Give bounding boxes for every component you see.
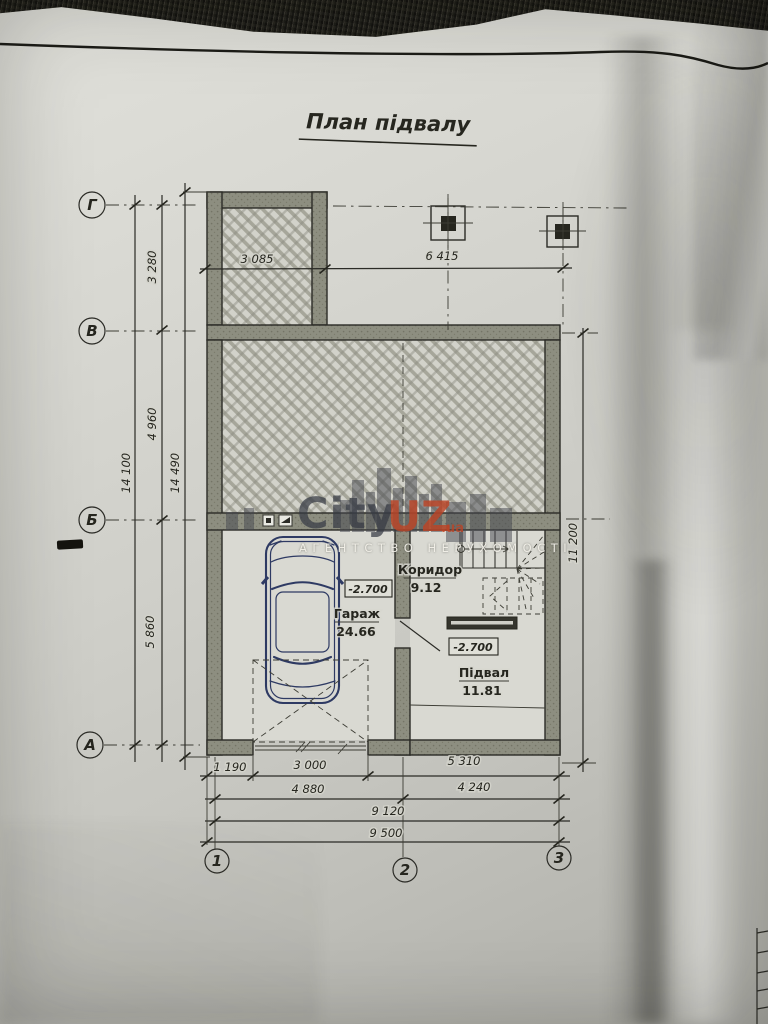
dim-left-seg3: 5 860 — [143, 616, 157, 649]
dim-left-total-walls: 14 490 — [168, 453, 182, 493]
garage-area: 24.66 — [336, 624, 376, 639]
dim-b4-total: 9 500 — [370, 826, 403, 840]
axis-row-b: Б — [86, 511, 97, 529]
basement-elevation: -2.700 — [453, 641, 493, 654]
dim-right-total: 11 200 — [566, 523, 580, 563]
photo-of-blueprint: Г В Б А 1 2 3 14 100 3 280 4 960 5 860 1… — [0, 0, 768, 1024]
dim-top-right: 6 415 — [426, 249, 459, 263]
basement-area: 11.81 — [462, 683, 502, 698]
garage-name: Гараж — [334, 606, 381, 621]
title-block-table-fragment — [757, 928, 768, 1024]
drawing-title-group: План підвалу — [299, 109, 478, 146]
garage-door-threshold — [255, 742, 366, 754]
axis-row-v: В — [86, 322, 97, 340]
column-2 — [539, 208, 586, 250]
dim-b1-3: 5 310 — [448, 754, 481, 768]
dim-left-seg1: 3 280 — [145, 251, 159, 284]
page-title: План підвалу — [306, 109, 472, 136]
garage-elevation: -2.700 — [348, 583, 388, 596]
ink-dash-mark — [57, 539, 83, 549]
dim-b2-1: 4 880 — [292, 782, 325, 796]
axis-col-1: 1 — [212, 852, 222, 870]
dim-left-total-axes: 14 100 — [119, 453, 133, 493]
dim-b3-total: 9 120 — [372, 804, 405, 818]
drawing-frame-border — [0, 44, 768, 69]
column-markers — [423, 198, 586, 250]
axis-row-g: Г — [87, 196, 98, 214]
corridor-name: Коридор — [398, 562, 462, 577]
basement-plan-drawing: Г В Б А 1 2 3 14 100 3 280 4 960 5 860 1… — [0, 0, 768, 1024]
dim-top-left: 3 085 — [241, 252, 274, 266]
dim-b2-2: 4 240 — [458, 780, 491, 794]
axis-col-2: 2 — [400, 861, 410, 879]
dim-b1-2: 3 000 — [294, 758, 327, 772]
basement-name: Підвал — [459, 665, 509, 680]
axis-row-a: А — [83, 736, 96, 754]
corridor-area: 9.12 — [411, 580, 442, 595]
dim-b1-1: 1 190 — [214, 760, 247, 774]
dim-left-seg2: 4 960 — [145, 408, 159, 441]
axis-col-3: 3 — [554, 849, 564, 867]
